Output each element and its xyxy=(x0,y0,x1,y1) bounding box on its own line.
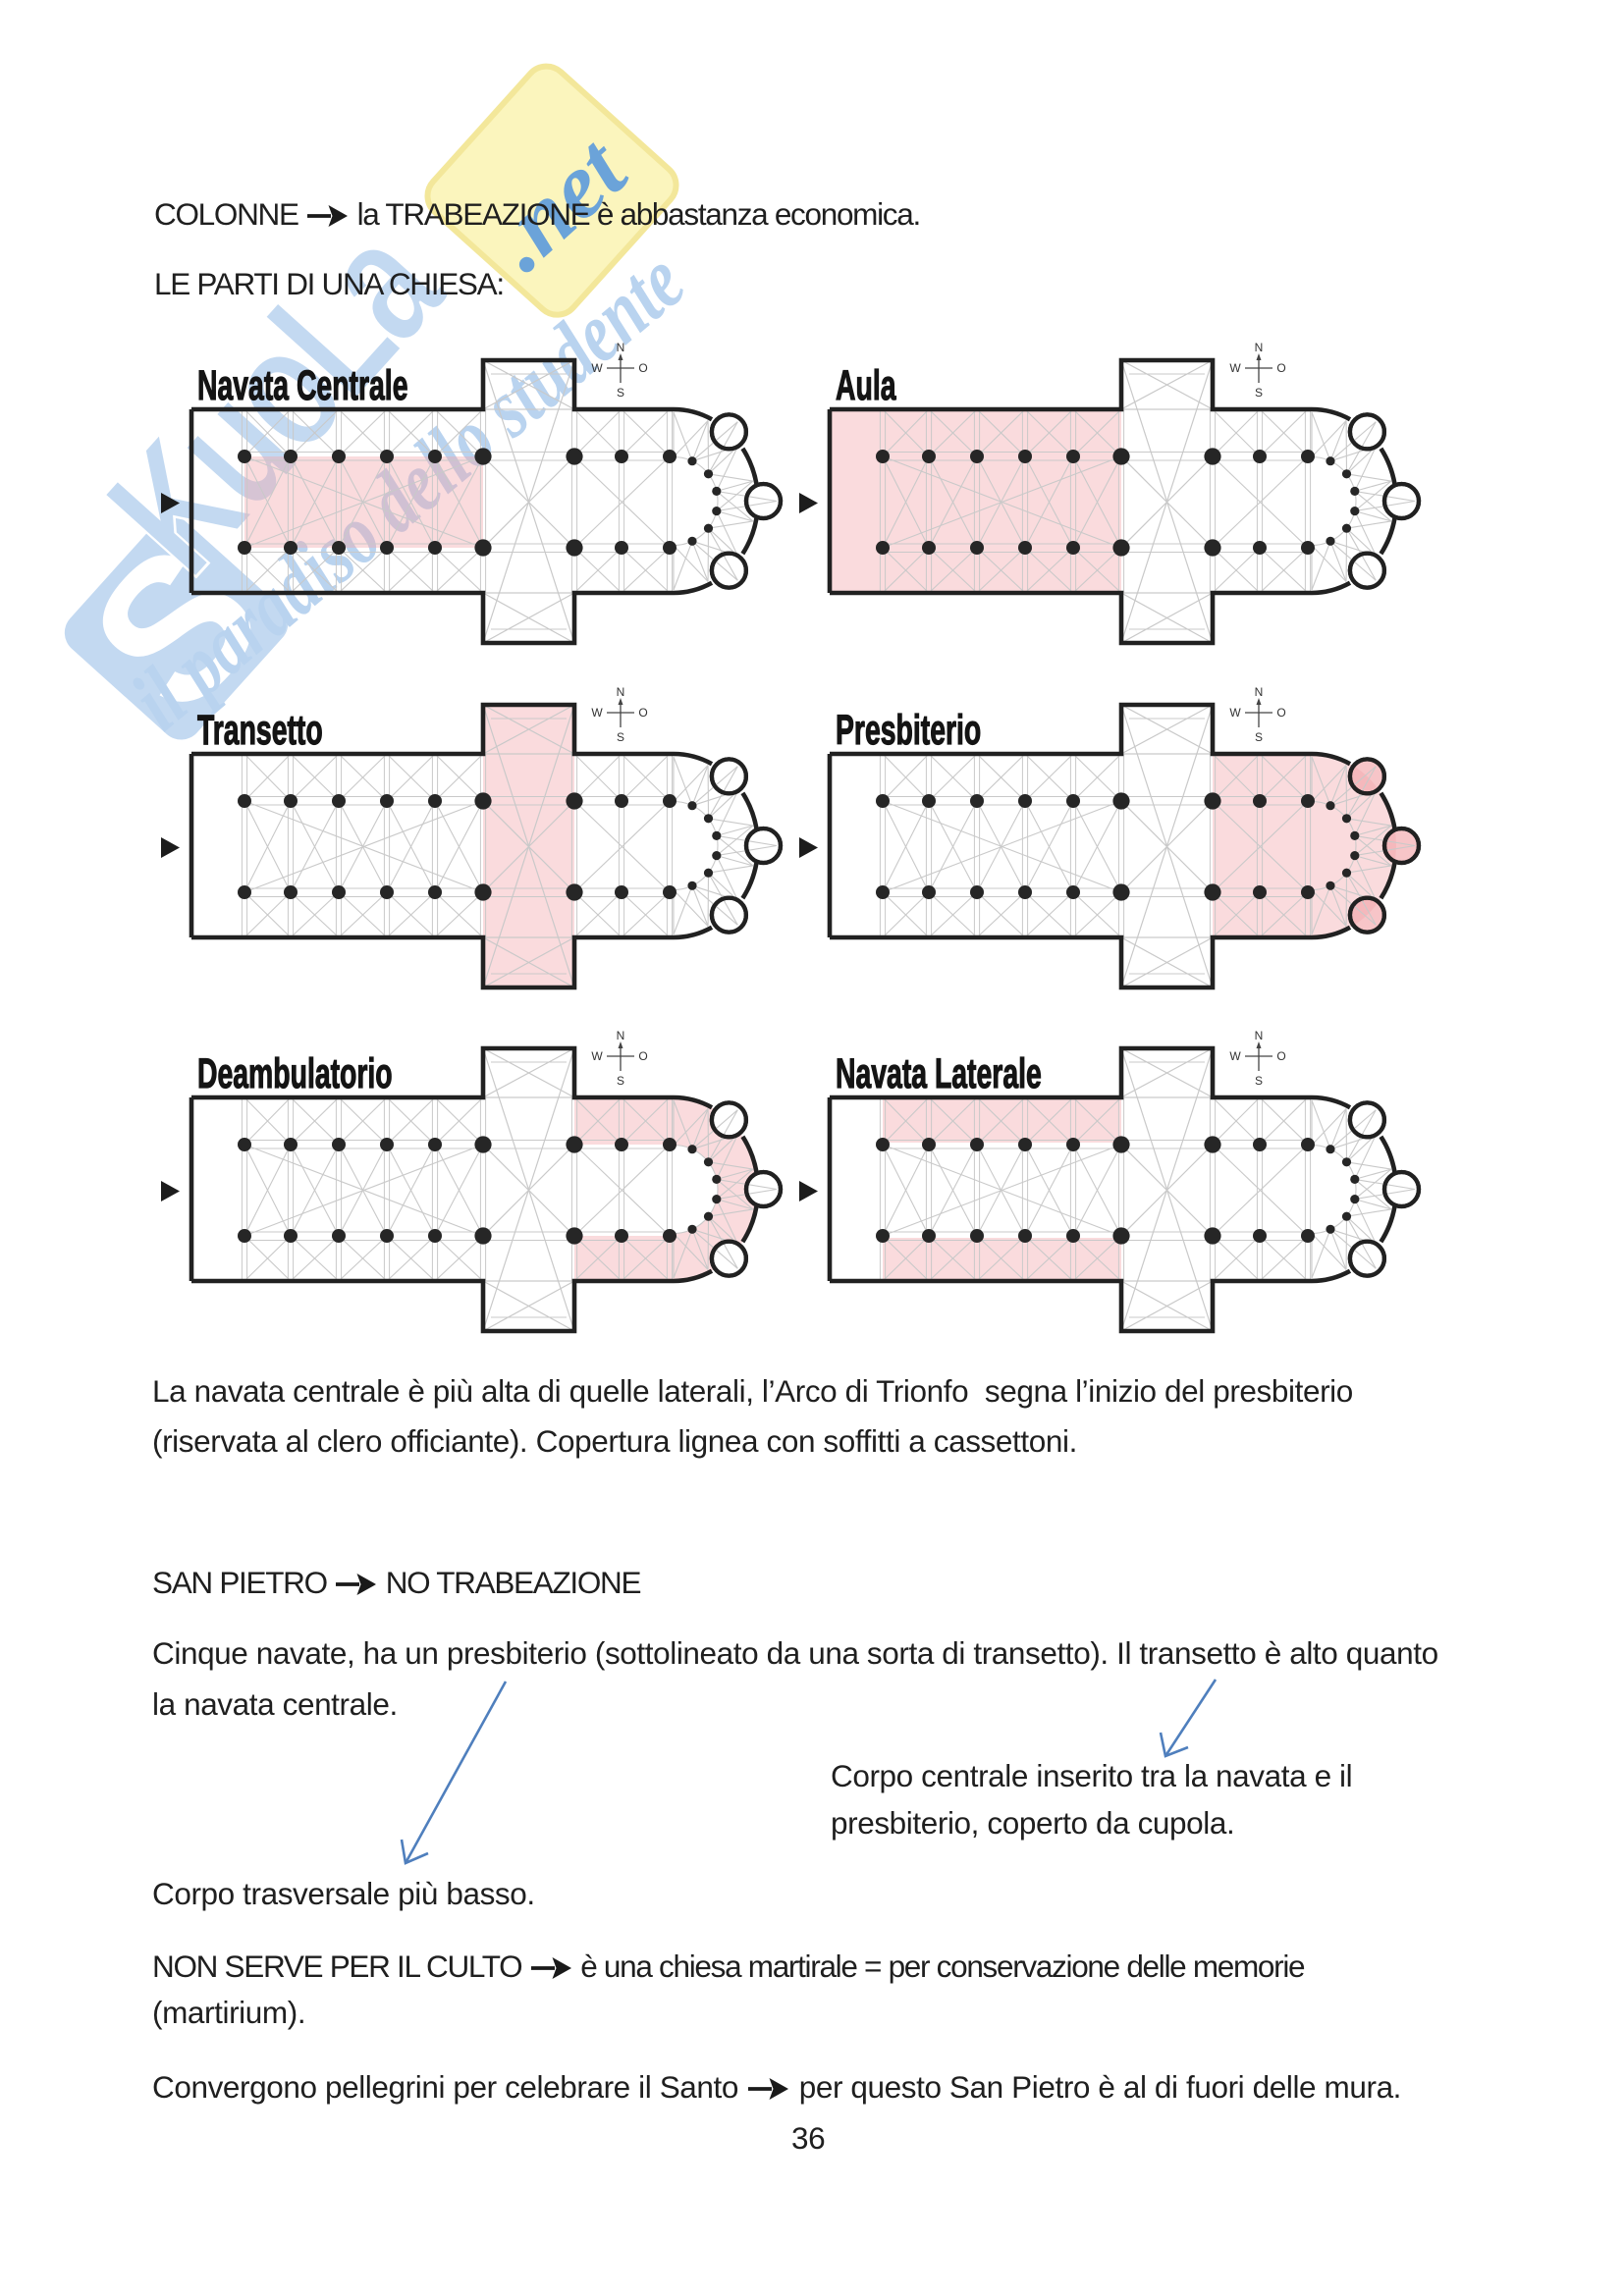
svg-text:N: N xyxy=(617,341,625,354)
svg-text:W: W xyxy=(591,706,603,720)
svg-text:Navata Centrale: Navata Centrale xyxy=(197,361,407,408)
svg-text:W: W xyxy=(591,1049,603,1063)
svg-text:N: N xyxy=(1255,685,1264,699)
svg-text:S: S xyxy=(617,1074,624,1088)
svg-text:N: N xyxy=(617,685,625,699)
svg-text:O: O xyxy=(1276,706,1285,720)
svg-text:W: W xyxy=(1229,361,1241,375)
svg-text:Aula: Aula xyxy=(836,361,896,408)
svg-text:O: O xyxy=(638,361,647,375)
svg-text:O: O xyxy=(638,706,647,720)
svg-text:W: W xyxy=(591,361,603,375)
svg-text:S: S xyxy=(1255,386,1263,400)
svg-text:W: W xyxy=(1229,706,1241,720)
svg-text:O: O xyxy=(638,1049,647,1063)
svg-text:W: W xyxy=(1229,1049,1241,1063)
svg-text:N: N xyxy=(1255,1029,1264,1042)
svg-text:N: N xyxy=(1255,341,1264,354)
svg-text:N: N xyxy=(617,1029,625,1042)
svg-text:S: S xyxy=(1255,1074,1263,1088)
svg-text:Deambulatorio: Deambulatorio xyxy=(197,1049,393,1096)
svg-text:S: S xyxy=(617,386,624,400)
svg-text:Transetto: Transetto xyxy=(197,706,323,753)
svg-text:S: S xyxy=(617,730,624,744)
svg-text:O: O xyxy=(1276,1049,1285,1063)
svg-text:S: S xyxy=(1255,730,1263,744)
svg-text:O: O xyxy=(1276,361,1285,375)
svg-text:Presbiterio: Presbiterio xyxy=(836,706,981,753)
svg-text:Navata Laterale: Navata Laterale xyxy=(836,1049,1042,1096)
